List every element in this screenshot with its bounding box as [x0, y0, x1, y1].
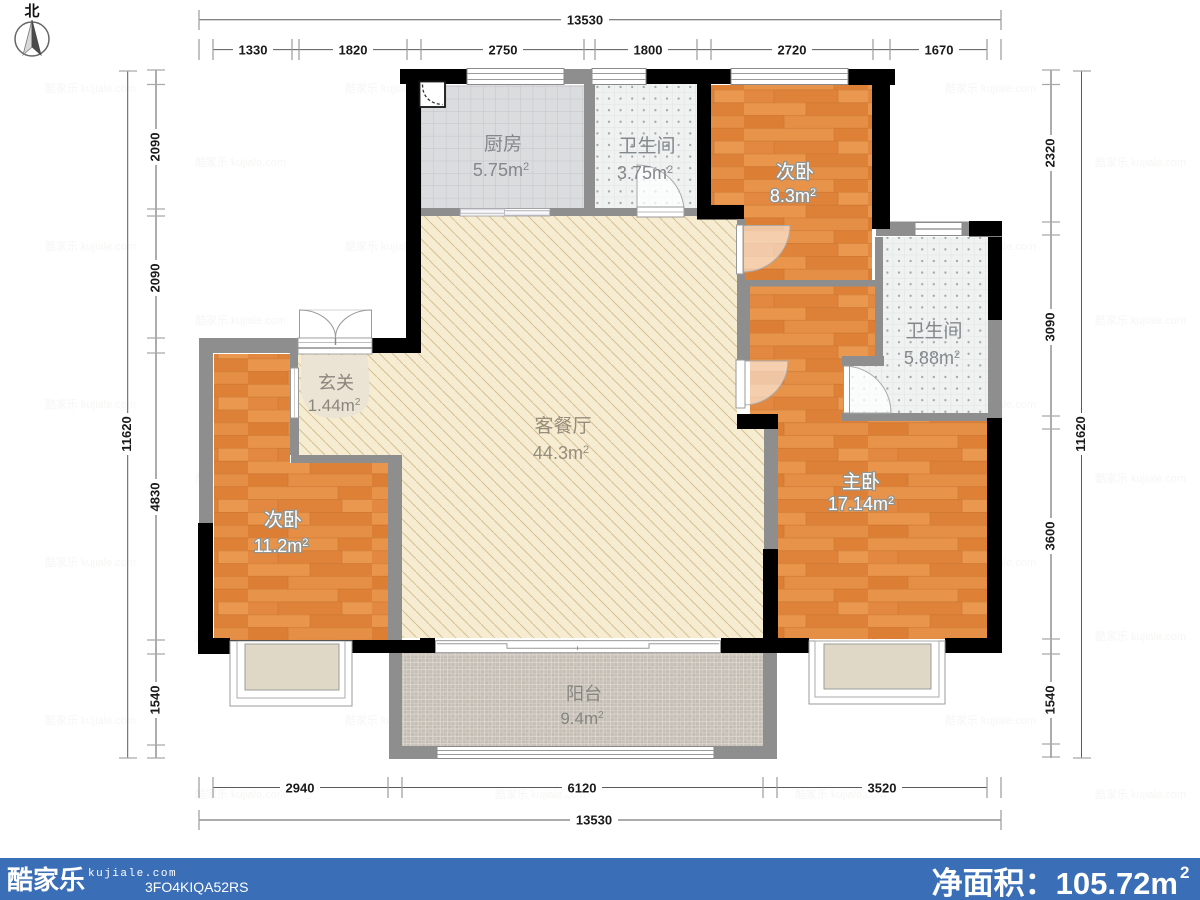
svg-text:5.88m2: 5.88m2: [904, 348, 960, 368]
svg-text:客餐厅: 客餐厅: [534, 415, 591, 437]
svg-text:5.75m2: 5.75m2: [473, 160, 529, 180]
svg-text:厨房: 厨房: [484, 133, 522, 155]
svg-text:卫生间: 卫生间: [618, 135, 675, 157]
svg-text:1820: 1820: [339, 43, 368, 58]
svg-text:2720: 2720: [778, 43, 807, 58]
svg-text:13530: 13530: [567, 13, 603, 28]
svg-text:11620: 11620: [119, 416, 134, 451]
svg-text:酷家乐 kujiale.com: 酷家乐 kujiale.com: [1095, 155, 1186, 169]
svg-text:17.14m2: 17.14m2: [828, 494, 894, 514]
svg-text:酷家乐 kujiale.com: 酷家乐 kujiale.com: [45, 81, 136, 95]
svg-text:酷家乐 kujiale.com: 酷家乐 kujiale.com: [45, 555, 136, 569]
svg-text:2090: 2090: [147, 133, 162, 162]
svg-text:主卧: 主卧: [842, 471, 880, 493]
svg-text:卫生间: 卫生间: [905, 320, 962, 342]
svg-text:9.4m2: 9.4m2: [560, 709, 604, 728]
svg-text:3520: 3520: [868, 781, 897, 796]
svg-text:2090: 2090: [147, 264, 162, 293]
svg-text:酷家乐 kujiale.com: 酷家乐 kujiale.com: [1095, 471, 1186, 485]
svg-text:4830: 4830: [147, 483, 162, 512]
svg-text:3090: 3090: [1042, 313, 1057, 342]
svg-text:次卧: 次卧: [264, 509, 302, 531]
svg-text:酷家乐 kujiale.com: 酷家乐 kujiale.com: [45, 713, 136, 727]
svg-text:酷家乐 kujiale.com: 酷家乐 kujiale.com: [195, 787, 286, 801]
svg-text:1540: 1540: [1042, 686, 1057, 715]
svg-text:酷家乐 kujiale.com: 酷家乐 kujiale.com: [1095, 629, 1186, 643]
svg-text:次卧: 次卧: [776, 161, 814, 183]
svg-text:玄关: 玄关: [318, 373, 354, 393]
svg-text:3.75m2: 3.75m2: [617, 163, 673, 183]
svg-text:酷家乐 kujiale.com: 酷家乐 kujiale.com: [195, 155, 286, 169]
svg-text:1670: 1670: [925, 43, 954, 58]
svg-text:13530: 13530: [576, 813, 612, 828]
svg-text:酷家乐 kujiale.com: 酷家乐 kujiale.com: [45, 239, 136, 253]
svg-text:3FO4KIQA52RS: 3FO4KIQA52RS: [145, 879, 249, 895]
svg-text:11620: 11620: [1073, 416, 1088, 451]
svg-text:酷家乐 kujiale.com: 酷家乐 kujiale.com: [195, 313, 286, 327]
svg-text:酷家乐 kujiale.com: 酷家乐 kujiale.com: [945, 713, 1036, 727]
svg-text:1330: 1330: [239, 43, 268, 58]
svg-text:2940: 2940: [286, 781, 315, 796]
svg-text:酷家乐 kujiale.com: 酷家乐 kujiale.com: [1095, 787, 1186, 801]
svg-text:2320: 2320: [1042, 139, 1057, 168]
svg-text:净面积：105.72m: 净面积：105.72m: [932, 866, 1178, 900]
svg-text:酷家乐 kujiale.com: 酷家乐 kujiale.com: [45, 397, 136, 411]
svg-text:6120: 6120: [568, 781, 597, 796]
svg-text:3600: 3600: [1042, 522, 1057, 551]
svg-text:44.3m2: 44.3m2: [533, 443, 589, 463]
svg-text:1540: 1540: [147, 686, 162, 715]
svg-text:酷家乐 kujiale.com: 酷家乐 kujiale.com: [1095, 313, 1186, 327]
svg-text:1.44m2: 1.44m2: [308, 396, 361, 415]
svg-text:2750: 2750: [489, 43, 518, 58]
svg-text:8.3m2: 8.3m2: [770, 186, 816, 206]
svg-text:酷家乐: 酷家乐: [7, 865, 85, 895]
svg-text:2: 2: [1180, 863, 1189, 882]
svg-text:11.2m2: 11.2m2: [254, 536, 309, 556]
svg-text:酷家乐 kujiale.com: 酷家乐 kujiale.com: [945, 81, 1036, 95]
svg-text:1800: 1800: [634, 43, 663, 58]
svg-text:北: 北: [24, 3, 39, 20]
svg-text:阳台: 阳台: [566, 684, 602, 704]
